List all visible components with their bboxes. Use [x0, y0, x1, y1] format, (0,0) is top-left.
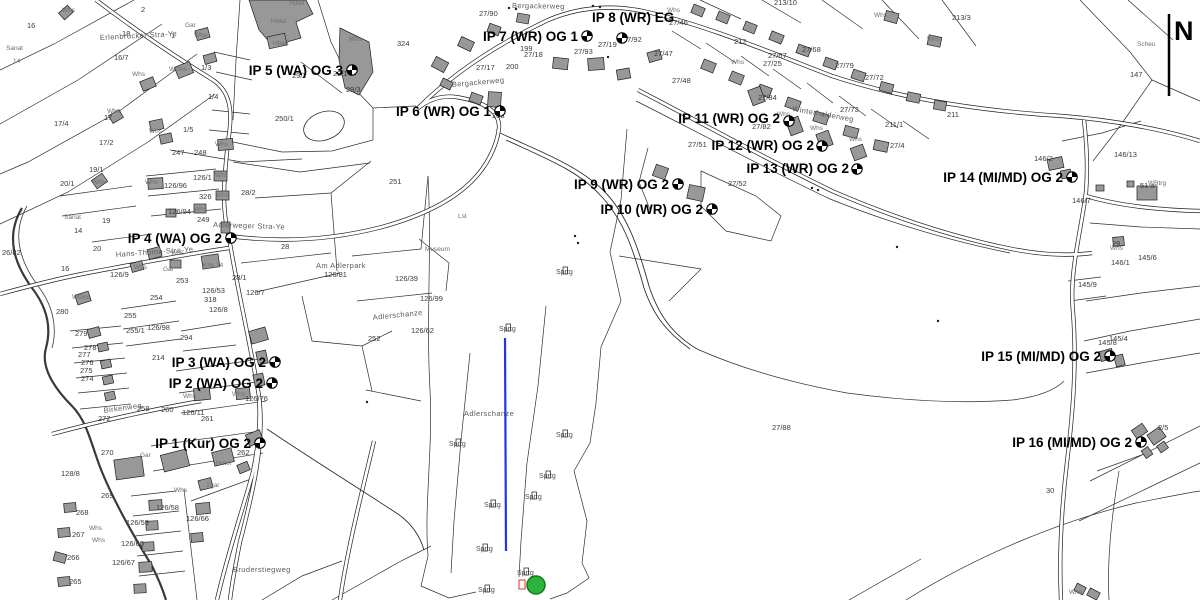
building [431, 56, 449, 72]
building-label: Khs 14 [203, 262, 224, 269]
ip-label: IP 16 (MI/MD) OG 2 [1012, 435, 1132, 450]
ip-point-15[interactable]: IP 15 (MI/MD) OG 2 [981, 349, 1115, 364]
parcel-label: 2 [141, 5, 145, 14]
sprtg-label: Sprtg [539, 473, 556, 480]
ip-point-10[interactable]: IP 10 (WR) OG 2 [600, 202, 717, 217]
hill-path [500, 133, 697, 349]
parcel-label: 19 [102, 216, 110, 225]
ip-label: IP 5 (WA) OG 3 [249, 63, 344, 78]
survey-marker-icon[interactable] [673, 179, 683, 189]
survey-marker-quadrant [275, 357, 280, 362]
parcel-label: 212 [734, 37, 747, 46]
building [191, 532, 204, 542]
parcel-label: 318 [204, 295, 217, 304]
parcel-label: 126/98 [147, 323, 170, 332]
building-label: Sanat [6, 45, 23, 52]
ip-label: IP 12 (WR) OG 2 [711, 138, 814, 153]
survey-marker-quadrant [272, 378, 277, 383]
street-label: Bruderstiegweg [233, 565, 291, 574]
ip-label: IP 9 (WR) OG 2 [574, 177, 669, 192]
ip-label: IP 13 (WR) OG 2 [746, 161, 849, 176]
survey-marker-icon[interactable] [267, 378, 277, 388]
building-label: 14 [13, 58, 21, 65]
building-label: Gar [140, 452, 152, 459]
parcel-label: 29/3 [346, 85, 361, 94]
survey-marker-quadrant [678, 179, 683, 184]
building [933, 100, 946, 111]
point-dot [574, 235, 576, 237]
ip-point-5[interactable]: IP 5 (WA) OG 3 [249, 63, 357, 78]
street-label: Bergackerweg [512, 1, 565, 11]
parcel-label: 27/18 [524, 50, 543, 59]
parcel-label: 270 [101, 448, 114, 457]
ip-label: IP 2 (WA) OG 2 [169, 376, 263, 391]
parcel-label: 126/39 [395, 274, 418, 283]
parcel-label: 16/7 [114, 53, 129, 62]
parcel-label: 126/62 [411, 326, 434, 335]
parcel-label: 126/76 [245, 394, 268, 403]
building [701, 59, 717, 73]
point-dot [599, 6, 601, 8]
parcel-label: 27/48 [672, 76, 691, 85]
parcel-label: 267 [72, 530, 85, 539]
building [87, 327, 101, 339]
ip-point-9[interactable]: IP 9 (WR) OG 2 [574, 177, 683, 192]
building [58, 527, 71, 537]
point-dot [607, 56, 609, 58]
parcel-label: 261 [201, 414, 214, 423]
survey-marker-quadrant [789, 116, 794, 121]
parcel-label: 126/8 [209, 305, 228, 314]
building-label: Whs [62, 7, 76, 14]
building-label: Whs [194, 206, 208, 213]
building-label: Whs [927, 36, 941, 43]
building-label: Whs [232, 391, 246, 398]
building [552, 57, 568, 70]
building [237, 461, 251, 473]
parcel-label: 1/4 [208, 92, 218, 101]
point-dot [592, 5, 594, 7]
survey-marker-quadrant [712, 204, 717, 209]
survey-marker-icon[interactable] [784, 116, 794, 126]
parcel-label: 27/93 [574, 47, 593, 56]
building [769, 31, 784, 44]
parcel-label: 27/72 [865, 73, 884, 82]
building-label: WBtrg [1148, 180, 1166, 187]
point-dot [577, 242, 579, 244]
parcel-label: 2/5 [1158, 423, 1168, 432]
parcel-label: 272 [98, 414, 111, 423]
sprtg-label: Sprtg [556, 432, 573, 439]
building-label: Whs [216, 192, 230, 199]
buildings [53, 0, 1168, 600]
survey-marker-icon[interactable] [270, 357, 280, 367]
survey-marker-icon[interactable] [347, 65, 357, 75]
building-label: Scheu [1137, 41, 1156, 48]
parcel-label: 249 [197, 215, 210, 224]
survey-marker-quadrant [1141, 437, 1146, 442]
parcel-label: 248 [194, 148, 207, 157]
street-label: Adlerschanze [372, 308, 423, 322]
red-marker [519, 580, 525, 589]
parcel-label: 128/8 [61, 469, 80, 478]
building-label: Whs [174, 487, 188, 494]
parcel-label: 1/5 [183, 125, 193, 134]
parcel-label: 1/3 [201, 63, 211, 72]
building [850, 144, 867, 161]
parcel-label: 14 [74, 226, 82, 235]
survey-marker-quadrant [817, 146, 822, 151]
survey-marker-quadrant [1072, 172, 1077, 177]
parcel-label: 126/53 [202, 286, 225, 295]
parcel-label: 126/66 [186, 514, 209, 523]
parcel-label: 27/47 [654, 49, 673, 58]
survey-marker-quadrant [857, 164, 862, 169]
ip-point-4[interactable]: IP 4 (WA) OG 2 [128, 231, 236, 246]
parcel-label: 126/1 [193, 173, 212, 182]
survey-marker-quadrant [260, 438, 265, 443]
ip-label: IP 10 (WR) OG 2 [600, 202, 703, 217]
building-label: Hbad [273, 40, 289, 47]
parcel-label: 146/2 [1034, 154, 1053, 163]
parcel-label: 146/13 [1114, 150, 1137, 159]
parcel-label: 27/51 [688, 140, 707, 149]
survey-marker-quadrant [226, 238, 231, 243]
parcel-label: 126/59 [126, 518, 149, 527]
building-label: Museum [425, 246, 450, 253]
point-dot [508, 7, 510, 9]
building [873, 140, 889, 153]
parcel-label: 326 [199, 192, 212, 201]
parcel-label: 324 [397, 39, 410, 48]
building-label: Lst [458, 213, 467, 220]
building-label: Whs [89, 525, 103, 532]
parcel-label: 280 [56, 307, 69, 316]
ski-jump-inrun-line [505, 338, 506, 551]
survey-marker-icon[interactable] [1105, 351, 1115, 361]
parcel-label: 27/88 [772, 423, 791, 432]
parcel-label: 145/4 [1109, 334, 1128, 343]
building-label: Whs [874, 12, 888, 19]
building-label: Whs [194, 32, 208, 39]
sprtg-label: Sprtg [525, 494, 542, 501]
building [140, 77, 157, 92]
parcel-label: 126/94 [168, 207, 191, 216]
survey-marker-quadrant [673, 184, 678, 189]
parcel-label: 19/1 [89, 165, 104, 174]
parcel-label: 213/3 [952, 13, 971, 22]
parcel-label: 27/19 [598, 40, 617, 49]
building-label: Whs [810, 125, 824, 132]
parcel-label: 250/1 [275, 114, 294, 123]
ip-point-12[interactable]: IP 12 (WR) OG 2 [711, 138, 827, 153]
building [743, 21, 757, 34]
survey-marker-quadrant [707, 209, 712, 214]
parcel-label: 17/4 [54, 119, 69, 128]
building-label: Tgar [206, 482, 220, 489]
ip-label: IP 11 (WR) OG 2 [678, 111, 780, 126]
building-label: Whs [349, 36, 363, 43]
building-label: WGhs [169, 66, 188, 73]
parcel-label: 255/1 [126, 326, 145, 335]
point-dot [811, 187, 813, 189]
ip-point-7[interactable]: IP 7 (WR) OG 1 [483, 29, 592, 44]
building [458, 37, 475, 52]
building [1096, 185, 1104, 191]
point-dot [937, 320, 939, 322]
parcel-label: 146/7 [1072, 196, 1091, 205]
ip-label: IP 7 (WR) OG 1 [483, 29, 579, 44]
survey-marker-quadrant [587, 31, 592, 36]
parcel-label: 253 [176, 276, 189, 285]
building [687, 184, 706, 201]
parcel-label: 126/81 [324, 270, 347, 279]
parcel-label: 279 [75, 329, 88, 338]
parcel-label: 211/1 [885, 120, 903, 129]
building [139, 562, 153, 573]
survey-marker-quadrant [231, 233, 236, 238]
survey-marker-quadrant [617, 38, 622, 43]
ip-point-11[interactable]: IP 11 (WR) OG 2 [678, 111, 794, 126]
north-arrow: N [1169, 14, 1194, 96]
building [729, 71, 745, 85]
building [616, 68, 631, 80]
building [851, 69, 866, 82]
building-label: Hotel [216, 460, 232, 467]
building-label: Gar [185, 22, 197, 29]
survey-marker-icon[interactable] [617, 33, 627, 43]
building-label: Whs [1110, 245, 1124, 252]
sprtg-label: Sprtg [556, 269, 573, 276]
building [1127, 181, 1134, 187]
building [516, 13, 529, 24]
parcel-label: 28 [281, 242, 289, 251]
building [114, 456, 145, 480]
ip-label: IP 8 (WR) EG [592, 10, 674, 25]
building-label: Hotel [289, 0, 305, 7]
parcel-label: 27/68 [802, 45, 821, 54]
building [134, 584, 146, 594]
roads [0, 0, 1200, 600]
parcel-label: 255 [124, 311, 137, 320]
survey-marker-icon[interactable] [1136, 437, 1146, 447]
parcel-label: 126/7 [246, 288, 265, 297]
parcel-label: 27/84 [758, 93, 777, 102]
parcel-label: 20 [93, 244, 101, 253]
parcel-boundaries [0, 0, 1200, 600]
survey-marker-quadrant [1136, 442, 1141, 447]
parcel-label: 30 [1046, 486, 1054, 495]
survey-marker-icon[interactable] [226, 233, 236, 243]
parcel-label: 16 [61, 264, 69, 273]
survey-marker-icon[interactable] [817, 141, 827, 151]
ip-label: IP 14 (MI/MD) OG 2 [943, 170, 1063, 185]
ip-point-2[interactable]: IP 2 (WA) OG 2 [169, 376, 277, 391]
building-label: Whs [92, 179, 106, 186]
survey-marker-quadrant [582, 36, 587, 41]
building-label: Hotel [271, 18, 287, 25]
point-dot [896, 246, 898, 248]
ip-label: IP 15 (MI/MD) OG 2 [981, 349, 1101, 364]
ip-point-3[interactable]: IP 3 (WA) OG 2 [172, 355, 280, 370]
parcel-label: 211 [947, 110, 959, 119]
parcel-label: 126/58 [156, 503, 179, 512]
sprtg-label: Sprtg [484, 502, 501, 509]
parcel-label: 17/2 [99, 138, 114, 147]
survey-marker-icon[interactable] [852, 164, 862, 174]
building-label: Whs [215, 172, 229, 179]
survey-marker-quadrant [784, 121, 789, 126]
sprtg-label: Sprtg [449, 441, 466, 448]
parcel-label: 254 [150, 293, 163, 302]
ip-point-16[interactable]: IP 16 (MI/MD) OG 2 [1012, 435, 1146, 450]
cadastral-map: N 16218116/71/31/41/51717/417/2247248250… [0, 0, 1200, 600]
building [53, 552, 67, 564]
parcel-label: 214 [152, 353, 165, 362]
parcel-label: 16 [27, 21, 35, 30]
survey-marker-quadrant [852, 169, 857, 174]
parcel-label: 213/10 [774, 0, 797, 7]
north-label: N [1174, 16, 1194, 46]
ip-label: IP 3 (WA) OG 2 [172, 355, 266, 370]
parcel-label: 27/52 [728, 179, 747, 188]
parcel-label: 260 [161, 405, 174, 414]
building [1141, 447, 1153, 459]
sprtg-label: Sprtg [499, 326, 516, 333]
building [160, 449, 189, 472]
survey-marker-quadrant [270, 362, 275, 367]
road-fills [0, 0, 1200, 600]
building-label: Whs [132, 71, 146, 78]
survey-marker-icon[interactable] [495, 106, 505, 116]
survey-marker-quadrant [1067, 177, 1072, 182]
parcel-label: 27/4 [890, 141, 905, 150]
parcel-label: 126/60 [121, 539, 144, 548]
survey-marker-icon[interactable] [255, 438, 265, 448]
parcel-label: 126/96 [164, 181, 187, 190]
building [100, 359, 111, 369]
parcel-label: 26/82 [2, 248, 21, 257]
survey-marker-quadrant [267, 383, 272, 388]
survey-marker-quadrant [622, 33, 627, 38]
parcel-label: 266 [67, 553, 80, 562]
ip-label: IP 6 (WR) OG 1 [396, 104, 492, 119]
parcel-label: 126/67 [112, 558, 135, 567]
building [97, 342, 108, 352]
parcel-label: 28/2 [241, 188, 256, 197]
parcel-label: 146/1 [1111, 258, 1130, 267]
parcel-label: 268 [76, 508, 89, 517]
survey-marker-icon[interactable] [582, 31, 592, 41]
survey-marker-quadrant [500, 106, 505, 111]
building [64, 502, 77, 512]
parcel-label: 294 [180, 333, 193, 342]
cadastral-map-page: N 16218116/71/31/41/51717/417/2247248250… [0, 0, 1200, 600]
road-casings [0, 0, 1200, 600]
parcel-label: 251 [389, 177, 402, 186]
sprtg-label: Sprtg [476, 546, 493, 553]
building-label: WGhs [72, 294, 91, 301]
sprtg-label: Sprtg [478, 587, 495, 594]
building [104, 391, 115, 401]
building-label: Whs [134, 264, 148, 271]
building [906, 92, 921, 104]
map-labels: 16218116/71/31/41/51717/417/2247248250/1… [2, 0, 1168, 596]
parcel-label: 28/1 [232, 273, 247, 282]
building-label: Whs [183, 393, 197, 400]
street-label: Bergackerweg [451, 75, 504, 89]
ip-point-13[interactable]: IP 13 (WR) OG 2 [746, 161, 862, 176]
pond-outline [299, 106, 348, 147]
building-label: Sanat [64, 214, 81, 221]
parcel-label: 274 [81, 374, 94, 383]
footpath [267, 429, 424, 550]
building-label: Whs [731, 59, 745, 66]
parcel-label: 27/17 [476, 63, 495, 72]
building-label: Whs [149, 128, 163, 135]
ip-point-6[interactable]: IP 6 (WR) OG 1 [396, 104, 505, 119]
building-label: Whs [849, 136, 863, 143]
point-dot [366, 401, 368, 403]
survey-marker-icon[interactable] [1067, 172, 1077, 182]
building-label: Whs [107, 108, 121, 115]
parcel-label: 269 [101, 491, 114, 500]
parcel-label: 265 [69, 577, 82, 586]
building-label: Gar [163, 266, 175, 273]
parcel-label: 252 [368, 334, 381, 343]
parcel-label: 145/6 [1138, 253, 1157, 262]
sprtg-label: Sprtg [517, 570, 534, 577]
ip-point-14[interactable]: IP 14 (MI/MD) OG 2 [943, 170, 1077, 185]
parcel-label: 126/99 [420, 294, 443, 303]
ip-label: IP 1 (Kur) OG 2 [155, 436, 251, 451]
building [691, 4, 705, 17]
building-label: Whs [145, 179, 159, 186]
parcel-label: 200 [506, 62, 519, 71]
building [1087, 588, 1100, 600]
street-label: Adlerschanze [464, 409, 514, 418]
ip-label: IP 4 (WA) OG 2 [128, 231, 222, 246]
landing-area-marker[interactable] [527, 576, 545, 594]
building-label: Whs [215, 141, 229, 148]
street-label: Am Adlerpark [316, 261, 366, 270]
building [102, 375, 113, 385]
parcel-label: 247 [172, 148, 185, 157]
parcel-label: 27/79 [835, 61, 854, 70]
building [469, 92, 483, 105]
survey-marker-icon[interactable] [707, 204, 717, 214]
building-label: Whs [92, 537, 106, 544]
building [588, 57, 605, 70]
parcel-label: 147 [1130, 70, 1143, 79]
building [196, 502, 211, 514]
ip-point-1[interactable]: IP 1 (Kur) OG 2 [155, 436, 265, 451]
building-label: Whs [1069, 589, 1083, 596]
point-dot [817, 189, 819, 191]
parcel-label: 145/9 [1078, 280, 1097, 289]
parcel-label: 20/1 [60, 179, 75, 188]
survey-marker-quadrant [1110, 351, 1115, 356]
parcel-label: 126/9 [110, 270, 129, 279]
parcel-label: 27/25 [763, 59, 782, 68]
building [249, 327, 269, 344]
parcel-label: 27/90 [479, 9, 498, 18]
